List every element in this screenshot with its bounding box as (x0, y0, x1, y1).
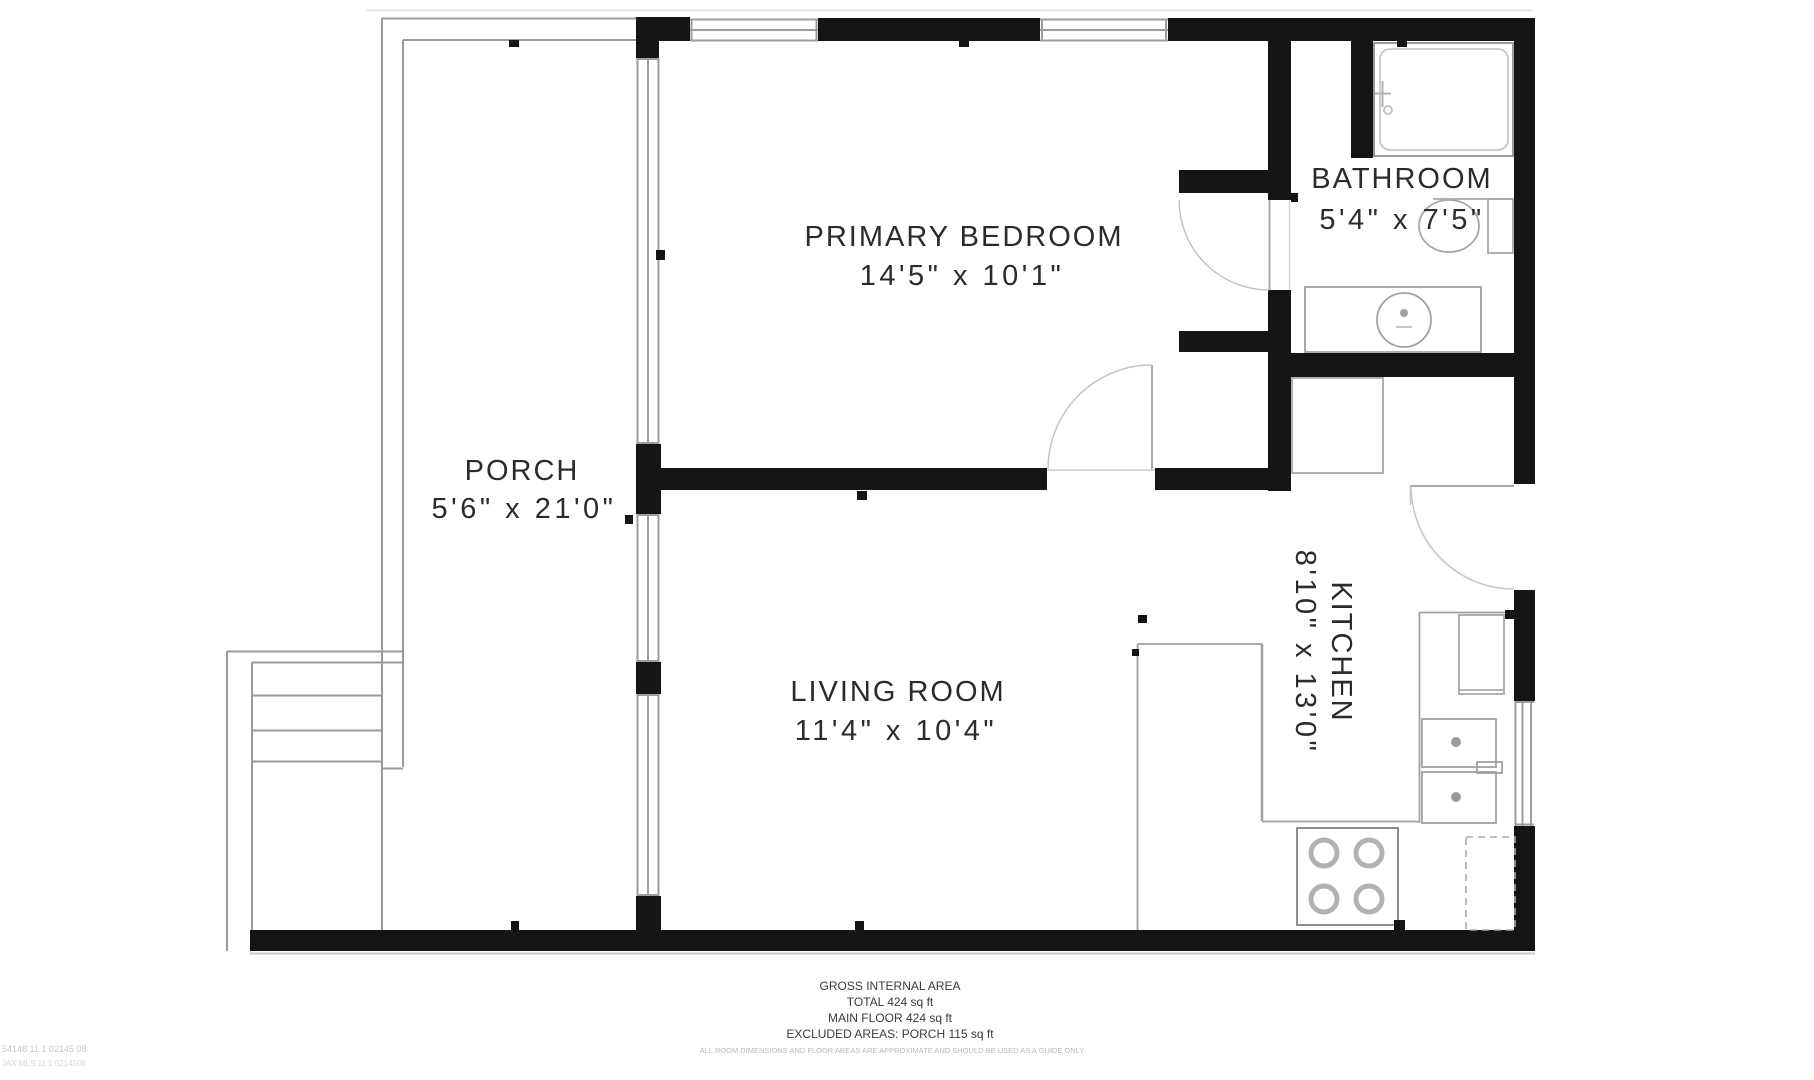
svg-text:54148 11 1 02145 08: 54148 11 1 02145 08 (2, 1044, 86, 1054)
svg-text:8'10" x 13'0": 8'10" x 13'0" (1289, 550, 1321, 755)
svg-text:MAIN FLOOR 424 sq ft: MAIN FLOOR 424 sq ft (828, 1011, 953, 1025)
svg-text:5'6" x 21'0": 5'6" x 21'0" (432, 493, 617, 525)
svg-text:5'4" x 7'5": 5'4" x 7'5" (1319, 204, 1484, 236)
svg-text:KITCHEN: KITCHEN (1325, 581, 1357, 722)
svg-text:JAX MLS 11 1 0214508: JAX MLS 11 1 0214508 (2, 1059, 86, 1068)
svg-text:PORCH: PORCH (465, 455, 580, 487)
svg-text:BATHROOM: BATHROOM (1311, 163, 1492, 195)
svg-text:EXCLUDED AREAS: PORCH 115 sq f: EXCLUDED AREAS: PORCH 115 sq ft (786, 1027, 994, 1041)
svg-text:ALL ROOM DIMENSIONS AND FLOOR: ALL ROOM DIMENSIONS AND FLOOR AREAS ARE … (700, 1046, 1085, 1055)
svg-text:14'5" x 10'1": 14'5" x 10'1" (860, 260, 1065, 292)
svg-text:11'4" x 10'4": 11'4" x 10'4" (795, 715, 997, 747)
svg-text:GROSS INTERNAL AREA: GROSS INTERNAL AREA (820, 979, 961, 993)
svg-text:PRIMARY BEDROOM: PRIMARY BEDROOM (805, 221, 1124, 253)
svg-text:LIVING ROOM: LIVING ROOM (790, 676, 1005, 708)
svg-text:TOTAL 424 sq ft: TOTAL 424 sq ft (847, 995, 934, 1009)
